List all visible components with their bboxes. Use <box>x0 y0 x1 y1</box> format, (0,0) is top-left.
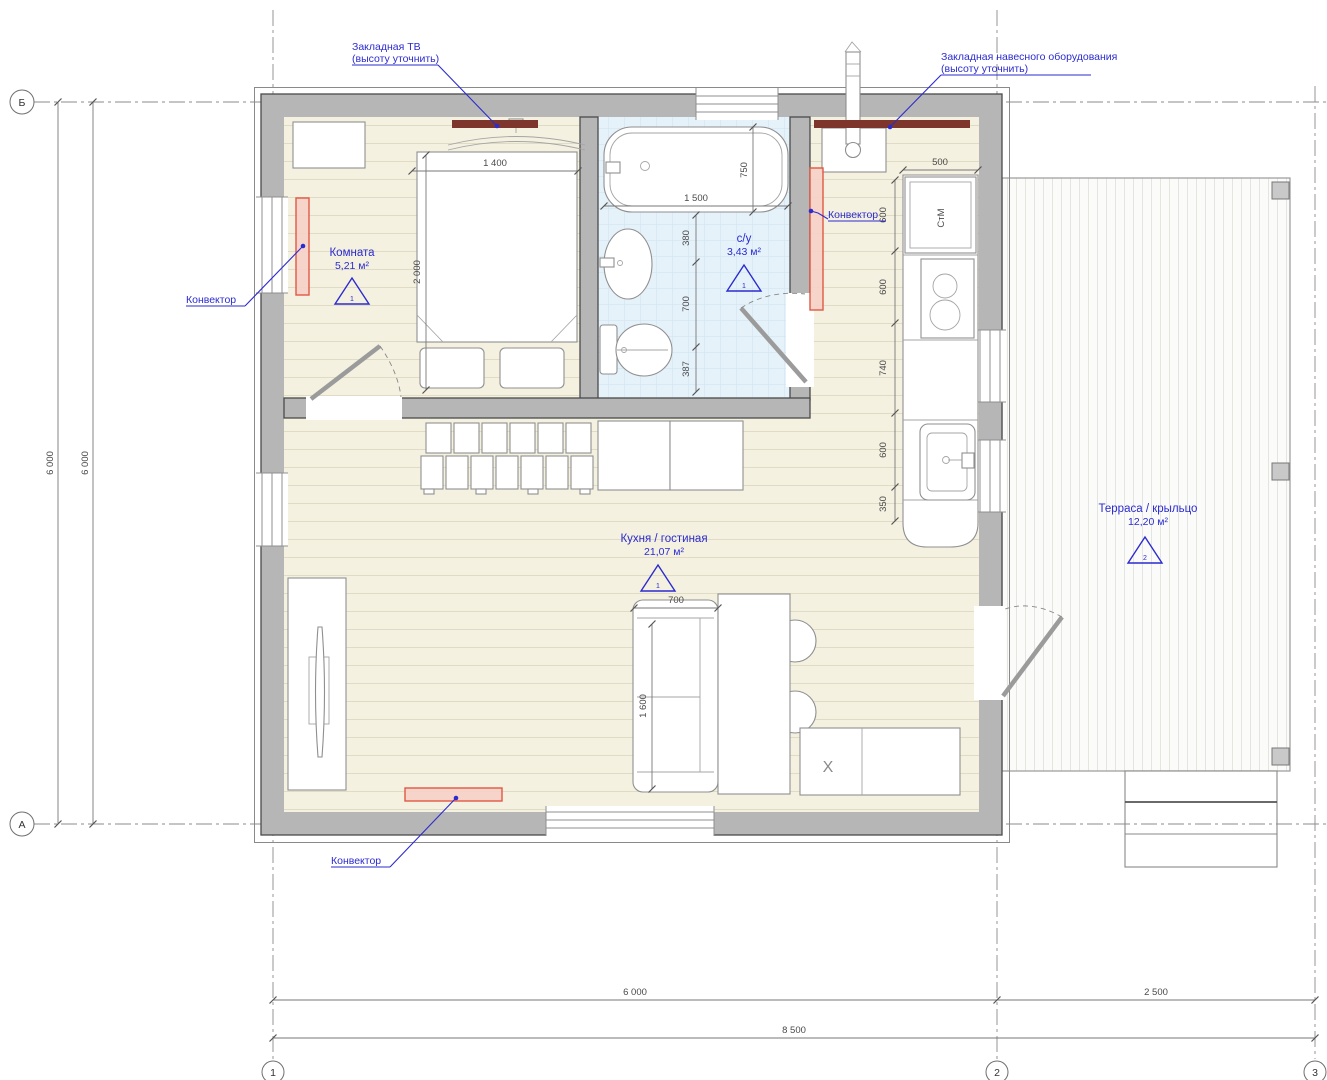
cooktop <box>921 259 974 338</box>
svg-text:Закладная навесного оборудован: Закладная навесного оборудования <box>941 51 1117 63</box>
terrace-post <box>1272 463 1289 480</box>
svg-text:387: 387 <box>681 361 692 377</box>
kitchen-counter <box>903 175 978 547</box>
svg-text:1: 1 <box>742 283 746 290</box>
kitchen-sink <box>920 424 975 500</box>
dim-left-inner: 6 000 <box>80 99 97 828</box>
convector-kitchen <box>810 168 823 310</box>
svg-text:3,43 м²: 3,43 м² <box>727 246 762 258</box>
svg-text:500: 500 <box>932 157 948 168</box>
svg-text:(высоту уточнить): (высоту уточнить) <box>352 53 439 65</box>
svg-text:5,21 м²: 5,21 м² <box>335 260 370 272</box>
svg-text:1 600: 1 600 <box>638 694 649 718</box>
window-top-bathroom <box>696 88 778 120</box>
washing-machine-label: СтМ <box>936 208 947 227</box>
svg-text:1 500: 1 500 <box>684 193 708 204</box>
dining-table <box>718 594 790 794</box>
axis-label-B: Б <box>19 97 26 109</box>
svg-text:6 000: 6 000 <box>45 451 56 475</box>
dim-left-outer: 6 000 <box>45 99 62 828</box>
toilet <box>600 324 672 376</box>
x-cabinet: X <box>800 728 960 795</box>
svg-text:Конвектор: Конвектор <box>331 855 381 867</box>
svg-text:(высоту уточнить): (высоту уточнить) <box>941 63 1028 75</box>
svg-text:Закладная ТВ: Закладная ТВ <box>352 41 421 53</box>
window-living-left <box>256 473 288 546</box>
svg-text:700: 700 <box>681 296 692 312</box>
window-kitchen-right-2 <box>974 440 1006 512</box>
svg-text:12,20 м²: 12,20 м² <box>1128 516 1168 528</box>
floor-plan-drawing: X 1 400 2 00 <box>0 0 1327 1080</box>
svg-text:600: 600 <box>878 279 889 295</box>
wall-bedroom-living-left <box>284 398 308 418</box>
window-kitchen-right-1 <box>974 330 1006 402</box>
window-bottom <box>546 806 714 836</box>
svg-text:2 500: 2 500 <box>1144 987 1168 998</box>
floor-plan-page: X 1 400 2 00 <box>0 0 1327 1080</box>
convector-bottom <box>405 788 502 801</box>
pillow <box>500 348 564 388</box>
svg-text:Кухня / гостиная: Кухня / гостиная <box>620 533 707 545</box>
svg-text:2: 2 <box>1143 555 1147 562</box>
axis-label-1: 1 <box>270 1067 276 1079</box>
svg-text:1: 1 <box>350 296 354 303</box>
axis-label-A: А <box>18 819 25 831</box>
svg-text:750: 750 <box>739 162 750 178</box>
svg-text:700: 700 <box>668 595 684 606</box>
wall-bedroom-living-right <box>400 398 810 418</box>
svg-text:Терраса / крыльцо: Терраса / крыльцо <box>1099 503 1198 515</box>
cabinet-x-mark: X <box>823 759 834 776</box>
tv-cabinet-living <box>288 578 346 790</box>
wall-bedroom-bathroom <box>580 117 598 400</box>
svg-text:с/у: с/у <box>737 233 752 245</box>
svg-text:21,07 м²: 21,07 м² <box>644 546 684 558</box>
svg-text:1 400: 1 400 <box>483 158 507 169</box>
terrace-post <box>1272 748 1289 765</box>
axis-label-3: 3 <box>1312 1067 1318 1079</box>
svg-text:8 500: 8 500 <box>782 1025 806 1036</box>
svg-text:740: 740 <box>878 360 889 376</box>
pillow <box>420 348 484 388</box>
svg-text:6 000: 6 000 <box>80 451 91 475</box>
terrace-steps <box>1125 771 1277 867</box>
svg-text:6 000: 6 000 <box>623 987 647 998</box>
svg-text:380: 380 <box>681 230 692 246</box>
terrace-post <box>1272 182 1289 199</box>
svg-text:1: 1 <box>656 583 660 590</box>
dim-bottom-total: 8 500 <box>270 1025 1319 1042</box>
wall-bathroom-kitchen <box>790 117 810 295</box>
bedroom-closet <box>293 122 365 168</box>
svg-text:Конвектор: Конвектор <box>186 294 236 306</box>
svg-text:Комната: Комната <box>329 247 375 259</box>
svg-text:350: 350 <box>878 496 889 512</box>
terrace-deck <box>1002 178 1290 771</box>
svg-text:600: 600 <box>878 442 889 458</box>
axis-label-2: 2 <box>994 1067 1000 1079</box>
svg-text:2 000: 2 000 <box>412 260 423 284</box>
dim-bottom-spans: 6 000 2 500 <box>270 987 1319 1004</box>
svg-text:Конвектор: Конвектор <box>828 209 878 221</box>
